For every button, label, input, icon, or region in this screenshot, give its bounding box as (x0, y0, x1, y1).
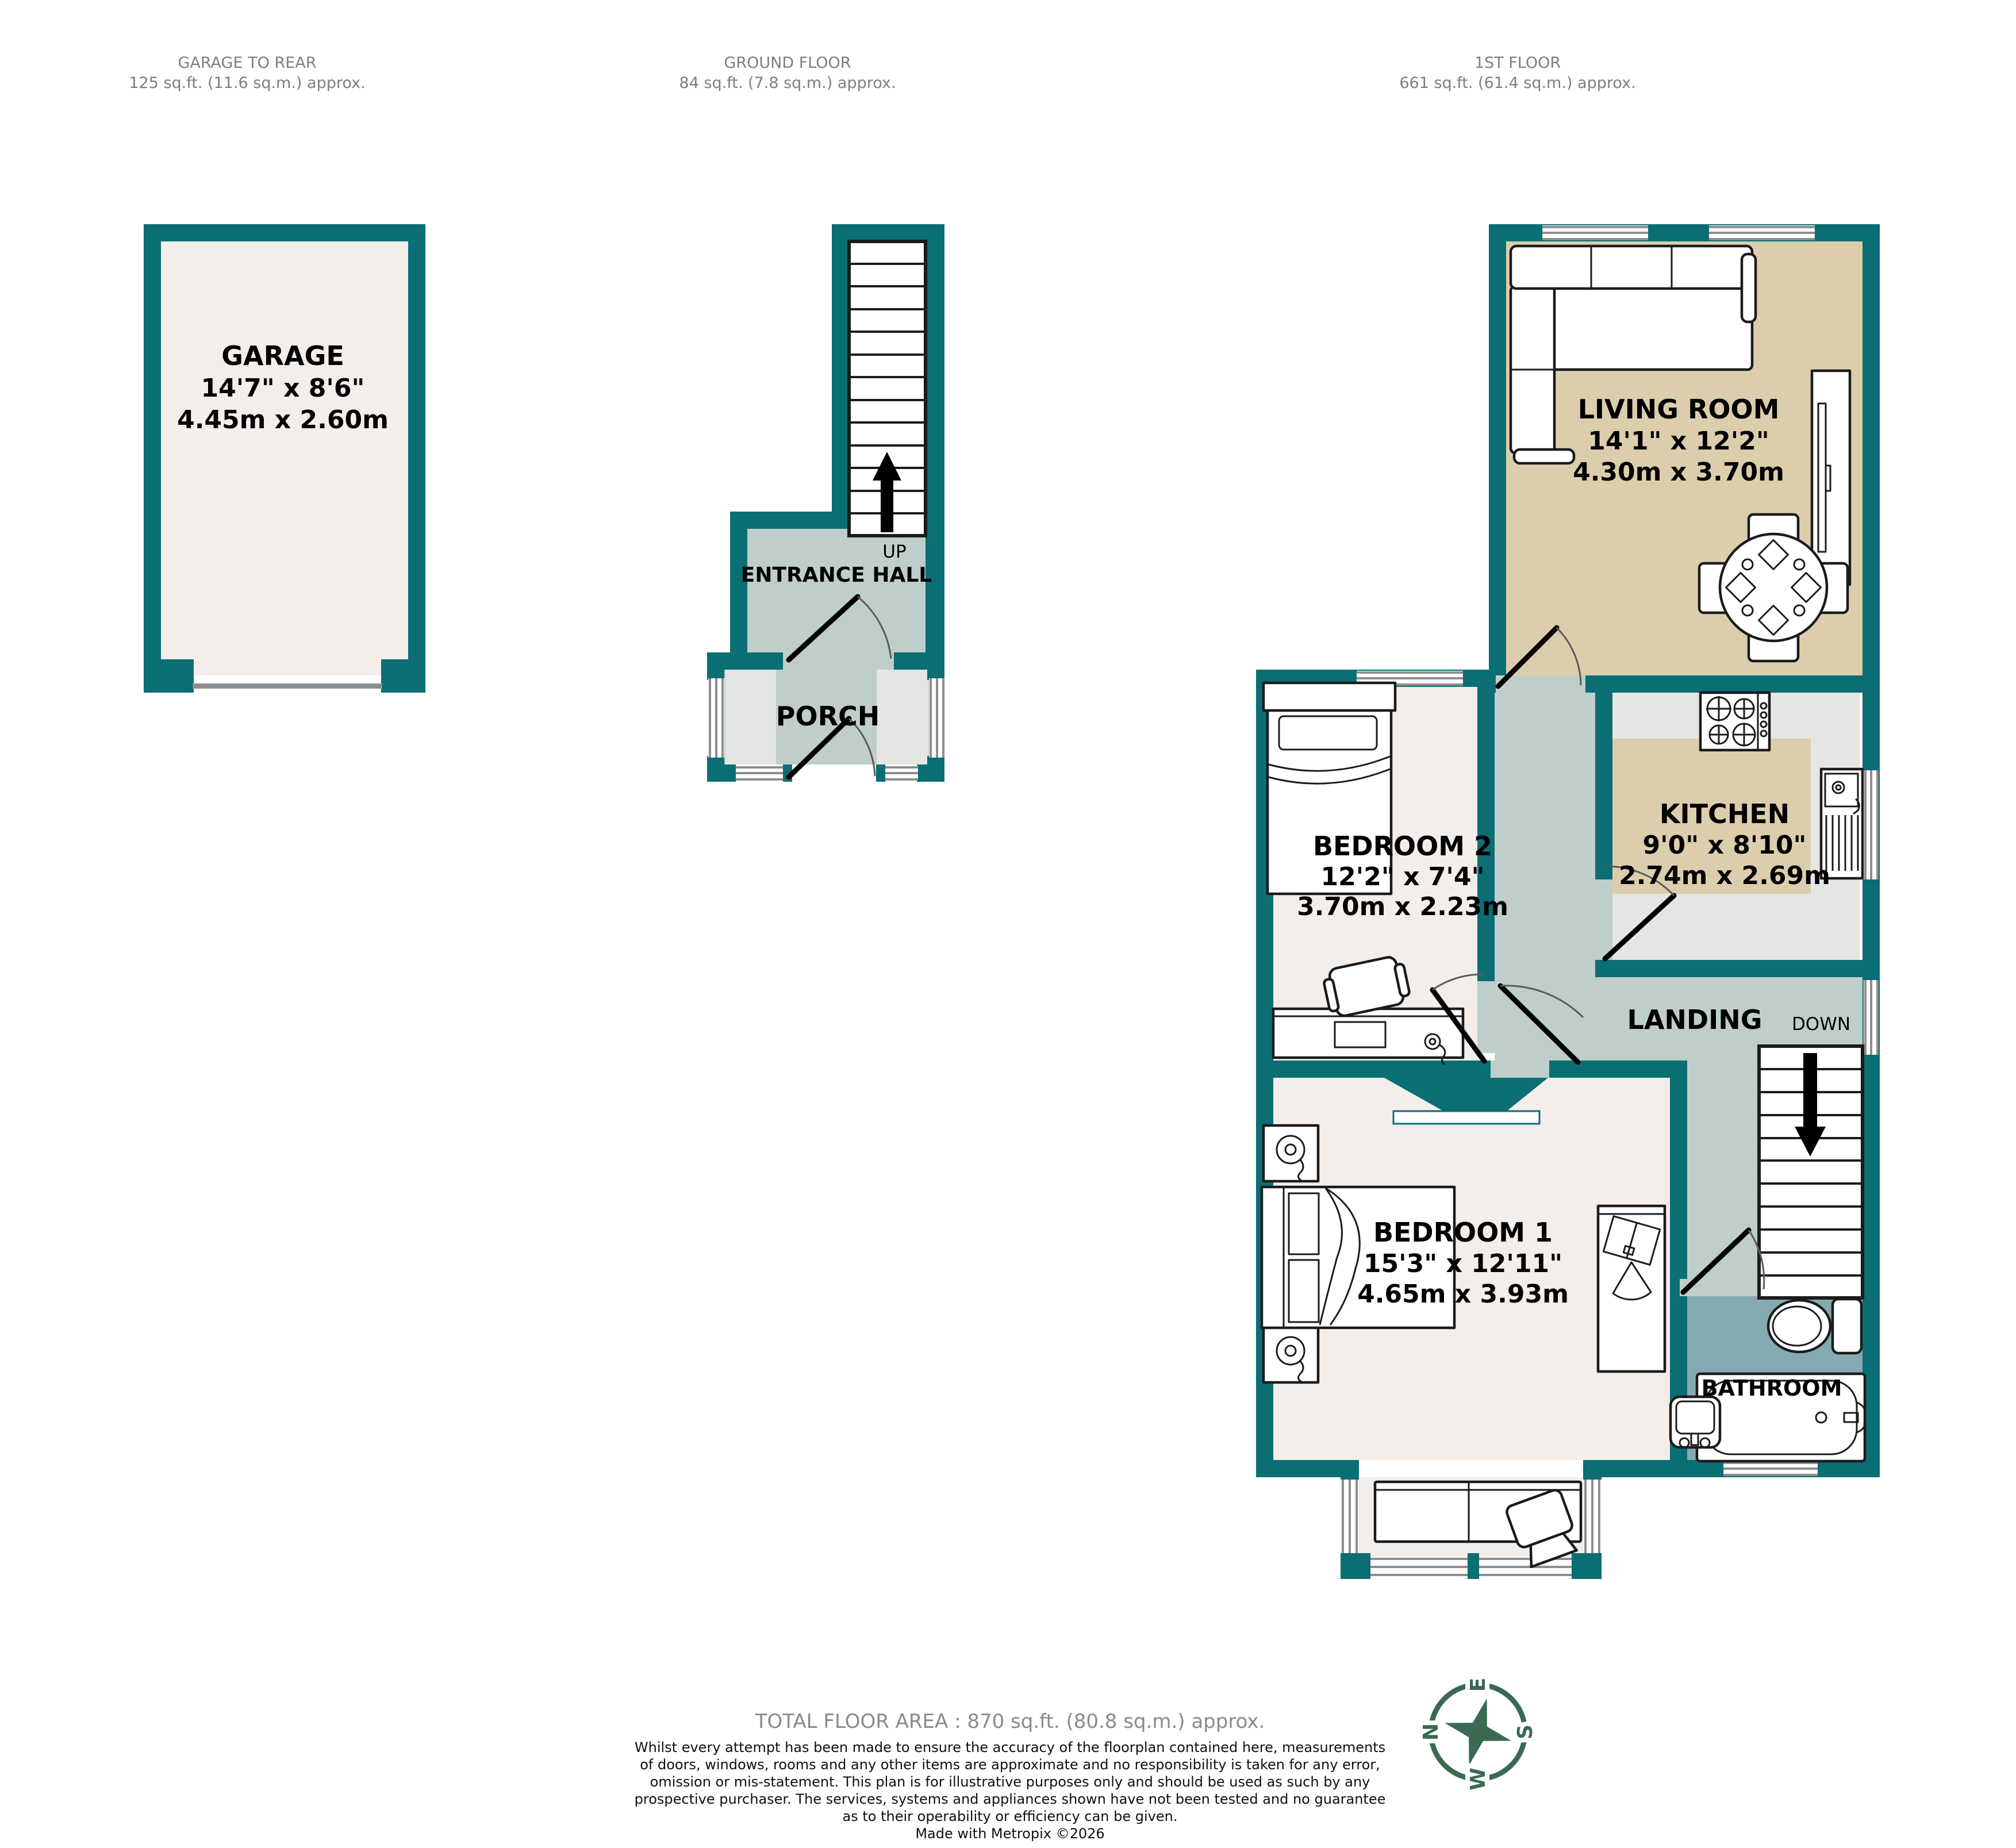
wall (926, 224, 944, 670)
desk-icon (1273, 1009, 1463, 1065)
compass-rose: N E S W (1419, 1678, 1537, 1791)
room-dim-imperial: 15'3" x 12'11" (1364, 1249, 1562, 1278)
landing-corridor-floor (1495, 693, 1595, 1061)
toilet-icon (1768, 1299, 1861, 1353)
wall (707, 652, 724, 680)
compass-n: N (1419, 1723, 1443, 1741)
wall (1489, 224, 1506, 693)
room-dim-metric: 4.65m x 3.93m (1357, 1280, 1569, 1309)
wall (707, 764, 736, 782)
wall (1595, 693, 1612, 879)
room-dim-imperial: 12'2" x 7'4" (1321, 862, 1485, 892)
disclaimer-line: Whilst every attempt has been made to en… (635, 1739, 1385, 1755)
wall (1549, 1061, 1687, 1078)
plan-title: 1ST FLOOR (1474, 54, 1561, 72)
room-label: GARAGE (221, 340, 344, 371)
room-label: BEDROOM 2 (1313, 831, 1492, 862)
garage-floor (161, 241, 408, 675)
nightstand-icon (1264, 1327, 1318, 1382)
stairs-up-label: UP (882, 541, 906, 562)
wall (730, 512, 849, 529)
garage-door-icon (193, 683, 382, 689)
total-floor-area: TOTAL FLOOR AREA : 870 sq.ft. (80.8 sq.m… (755, 1710, 1265, 1733)
porch-window-bottom-left (736, 766, 783, 781)
wall (1670, 1078, 1687, 1279)
stairs-down-label: DOWN (1792, 1014, 1850, 1035)
chimney-recess (1393, 1111, 1539, 1124)
garage-wall-stub (161, 659, 194, 693)
first-floor-plan: LIVING ROOM 14'1" x 12'2" 4.30m x 3.70m … (1256, 224, 1880, 1579)
porch-side-sill (725, 670, 776, 764)
compass-s: S (1514, 1724, 1537, 1739)
compass-w: W (1466, 1768, 1490, 1791)
wall (917, 764, 944, 782)
room-dim-metric: 4.45m x 2.60m (177, 405, 389, 435)
kitchen-door-opening (1595, 879, 1612, 960)
disclaimer-line: of doors, windows, rooms and any other i… (640, 1757, 1380, 1773)
header-ground-floor: GROUND FLOOR 84 sq.ft. (7.8 sq.m.) appro… (679, 54, 896, 92)
room-label: ENTRANCE HALL (741, 563, 932, 587)
room-label: KITCHEN (1660, 798, 1790, 829)
disclaimer-line: prospective purchaser. The services, sys… (635, 1791, 1386, 1807)
room-dim-metric: 3.70m x 2.23m (1297, 892, 1508, 921)
plan-subtitle: 84 sq.ft. (7.8 sq.m.) approx. (679, 74, 896, 92)
living-room-window (1709, 225, 1815, 240)
room-label: BEDROOM 1 (1373, 1217, 1553, 1248)
disclaimer-line: omission or mis-statement. This plan is … (650, 1774, 1370, 1790)
room-dim-imperial: 9'0" x 8'10" (1643, 831, 1807, 860)
wall (1256, 1460, 1341, 1477)
bay-window (1341, 1460, 1602, 1579)
bathroom-window (1723, 1461, 1818, 1476)
living-room-window (1542, 225, 1648, 240)
plan-subtitle: 125 sq.ft. (11.6 sq.m.) approx. (129, 74, 365, 92)
compass-e: E (1466, 1678, 1490, 1692)
garage-plan: GARAGE 14'7" x 8'6" 4.45m x 2.60m (144, 224, 425, 693)
compass-star-icon (1436, 1690, 1520, 1774)
room-label: BATHROOM (1702, 1376, 1842, 1401)
hob-icon (1700, 693, 1769, 750)
floorplan-page: GARAGE TO REAR 125 sq.ft. (11.6 sq.m.) a… (0, 0, 2016, 1848)
wall (1256, 1061, 1491, 1078)
ground-floor-plan: UP ENTRANCE HALL PORCH (707, 224, 945, 782)
hall-door-opening (783, 652, 894, 670)
basin-icon (1671, 1397, 1720, 1447)
room-dim-imperial: 14'7" x 8'6" (201, 374, 365, 403)
bay-front-window (1479, 1557, 1572, 1577)
room-label: PORCH (776, 701, 880, 732)
wardrobe-icon (1598, 1206, 1665, 1371)
room-dim-metric: 4.30m x 3.70m (1573, 458, 1784, 487)
porch-side-sill (877, 670, 928, 764)
staircase-down (1759, 1046, 1863, 1298)
bedroom2-door-opening (1477, 981, 1495, 1053)
footer: TOTAL FLOOR AREA : 870 sq.ft. (80.8 sq.m… (635, 1710, 1386, 1842)
garage-wall-stub (381, 659, 414, 693)
staircase-up (849, 241, 926, 536)
wall (1602, 1460, 1687, 1477)
plan-title: GARAGE TO REAR (178, 54, 317, 72)
door-post (876, 764, 885, 782)
disclaimer-line: as to their operability or efficiency ca… (843, 1808, 1178, 1824)
plan-title: GROUND FLOOR (724, 54, 851, 72)
bedroom1-door-opening (1491, 1061, 1549, 1078)
bay-side-window (1583, 1480, 1602, 1553)
room-dim-imperial: 14'1" x 12'2" (1588, 427, 1769, 456)
porch-window-left (708, 678, 724, 758)
porch-window-right (929, 678, 945, 758)
porch-window-bottom-right (885, 766, 918, 781)
credit-line: Made with Metropix ©2026 (915, 1826, 1104, 1842)
tv-unit-icon (1812, 371, 1850, 585)
wall (1595, 960, 1880, 977)
bay-front-window (1370, 1557, 1468, 1577)
header-garage-to-rear: GARAGE TO REAR 125 sq.ft. (11.6 sq.m.) a… (129, 54, 365, 92)
plan-subtitle: 661 sq.ft. (61.4 sq.m.) approx. (1399, 74, 1635, 92)
wall (1670, 1296, 1687, 1477)
room-label: LANDING (1627, 1004, 1762, 1035)
bay-side-window (1341, 1480, 1359, 1553)
wall (894, 652, 944, 670)
room-dim-metric: 2.74m x 2.69m (1619, 861, 1830, 890)
wall (832, 224, 849, 529)
landing-window (1864, 980, 1879, 1055)
floorplan-svg: GARAGE TO REAR 125 sq.ft. (11.6 sq.m.) a… (0, 0, 2016, 1848)
header-first-floor: 1ST FLOOR 661 sq.ft. (61.4 sq.m.) approx… (1399, 54, 1635, 92)
kitchen-window (1864, 770, 1879, 879)
room-label: LIVING ROOM (1578, 394, 1780, 425)
nightstand-icon (1264, 1125, 1318, 1181)
